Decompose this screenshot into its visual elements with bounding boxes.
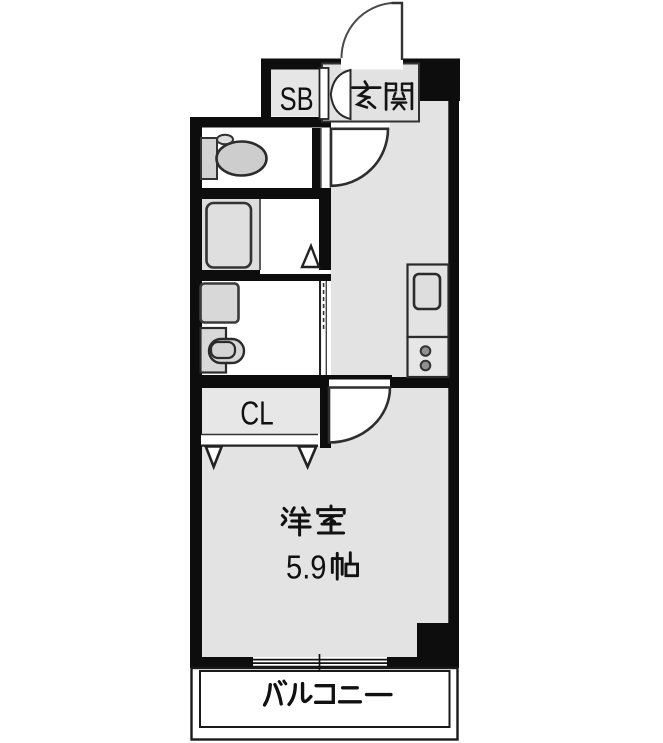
svg-text:SB: SB <box>280 81 314 117</box>
svg-text:5.9: 5.9 <box>286 549 327 586</box>
svg-text:CL: CL <box>240 395 274 432</box>
